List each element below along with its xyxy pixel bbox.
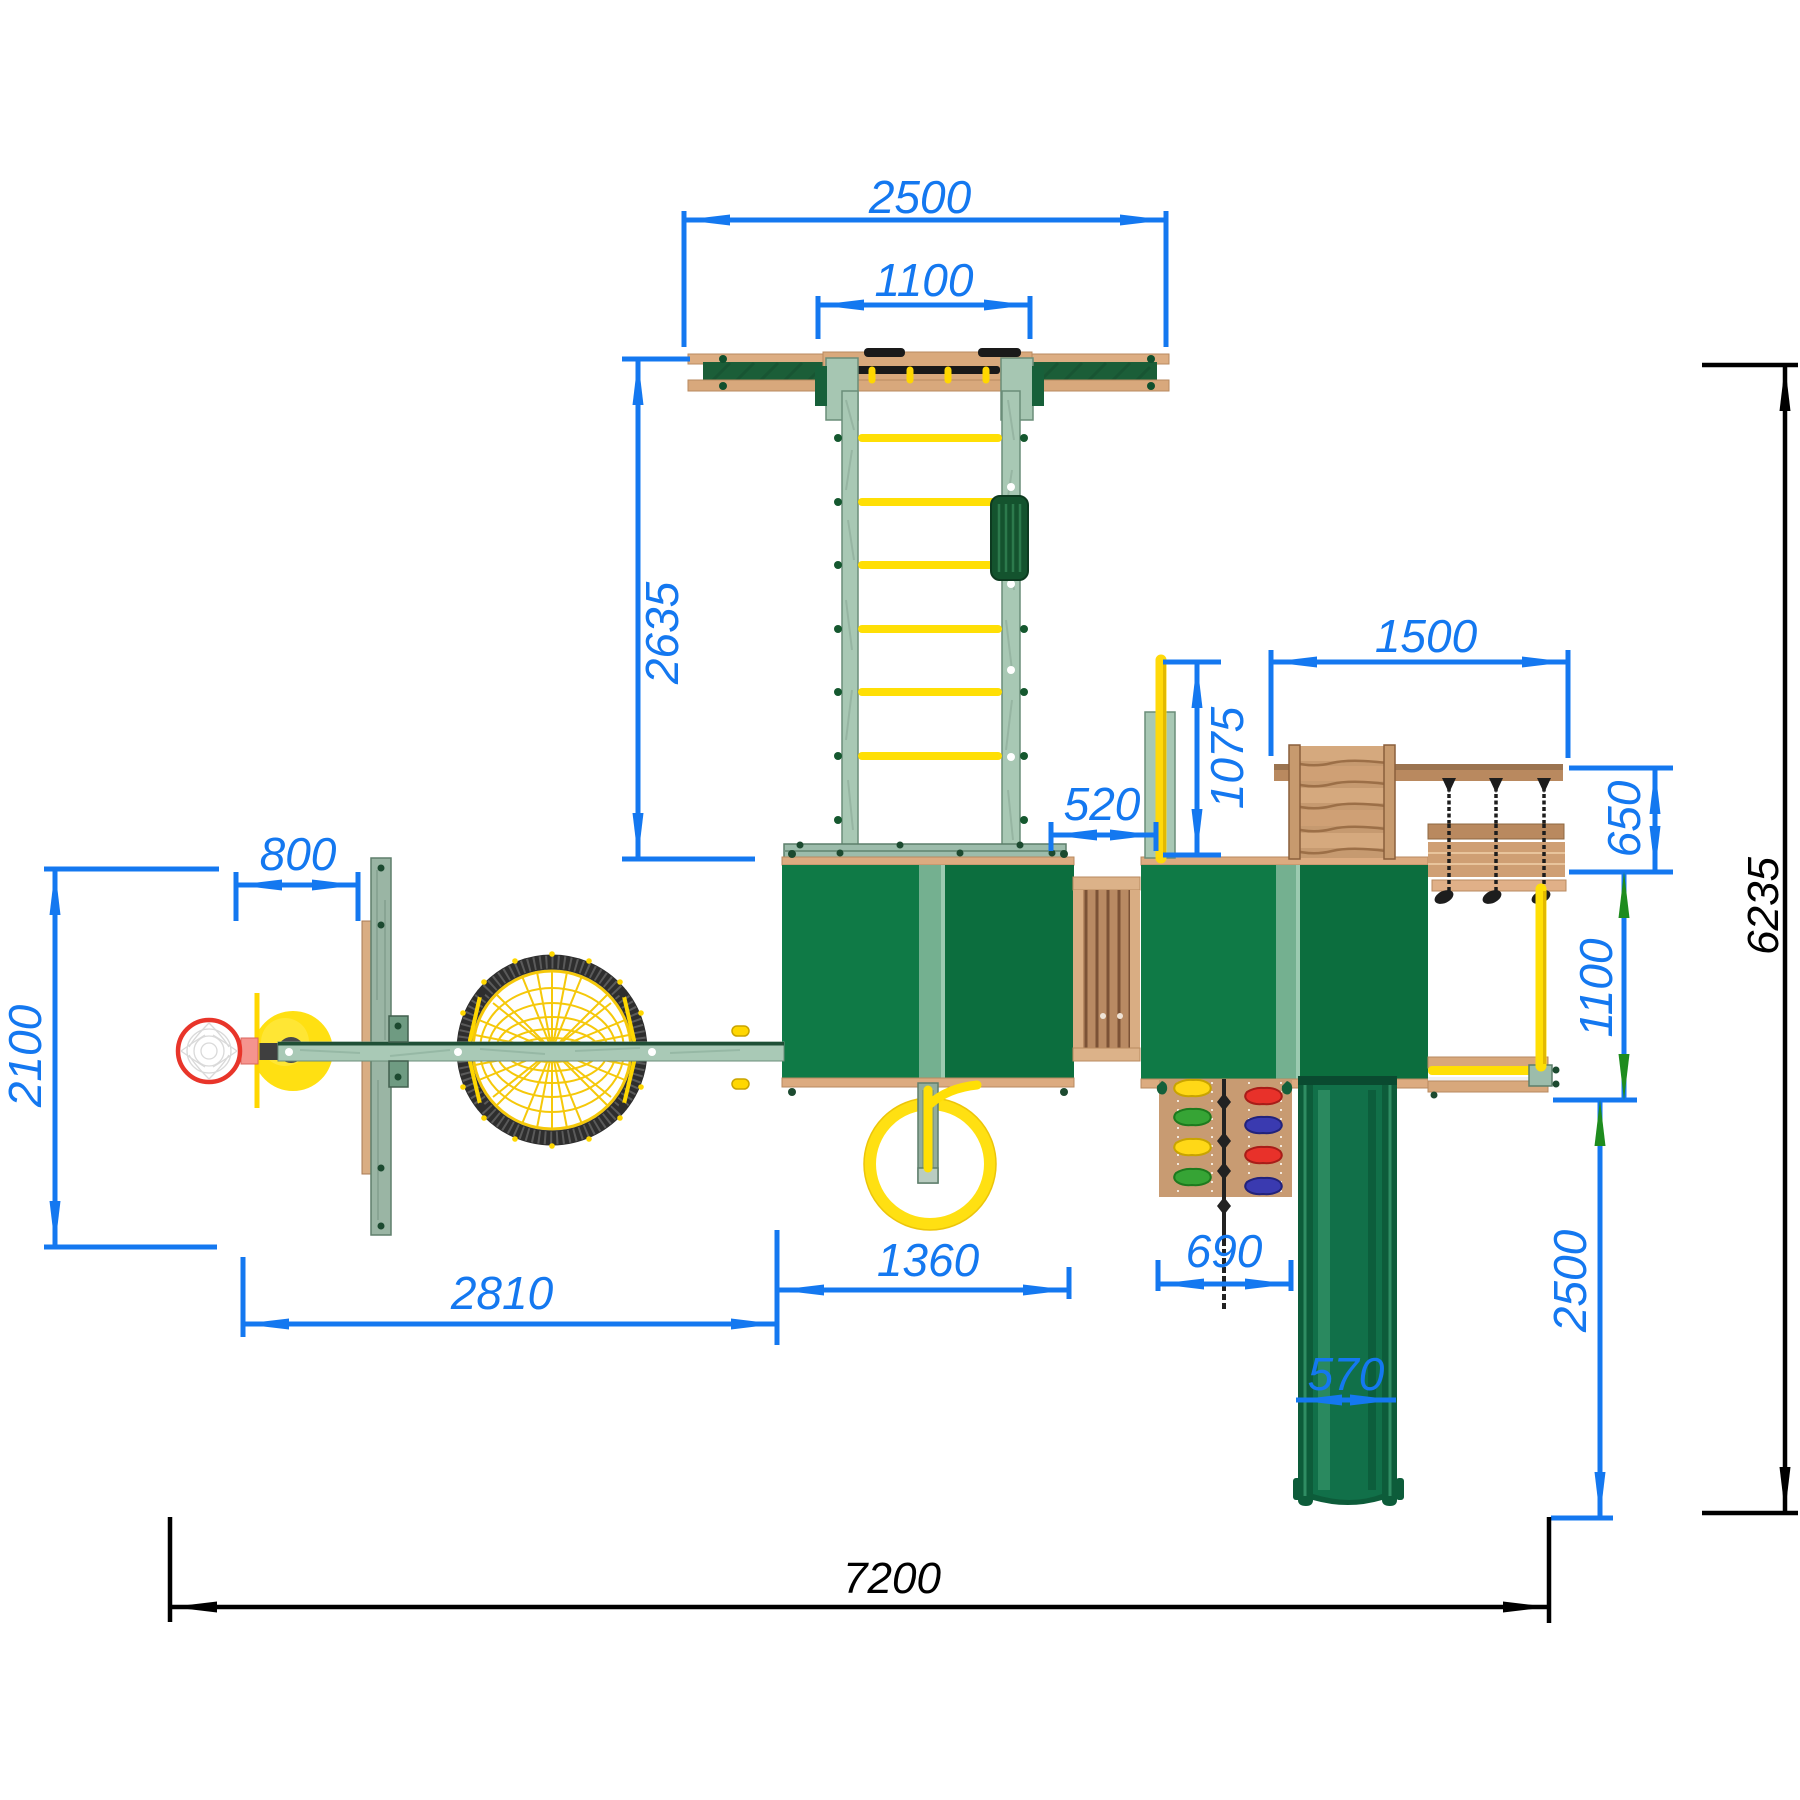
svg-text:2635: 2635 <box>636 581 688 685</box>
svg-text:2100: 2100 <box>0 1004 51 1108</box>
svg-text:1100: 1100 <box>1570 938 1622 1037</box>
svg-text:1100: 1100 <box>875 254 974 306</box>
svg-text:7200: 7200 <box>843 1554 941 1603</box>
svg-text:6235: 6235 <box>1739 857 1788 955</box>
svg-text:2810: 2810 <box>450 1267 554 1319</box>
svg-text:1360: 1360 <box>877 1234 980 1286</box>
svg-text:1500: 1500 <box>1375 610 1478 662</box>
svg-text:800: 800 <box>260 828 337 880</box>
svg-text:690: 690 <box>1186 1225 1263 1277</box>
svg-text:650: 650 <box>1598 780 1650 857</box>
svg-text:520: 520 <box>1064 778 1141 830</box>
svg-text:1075: 1075 <box>1201 706 1253 809</box>
svg-text:2500: 2500 <box>1544 1229 1596 1333</box>
svg-text:2500: 2500 <box>868 171 972 223</box>
svg-text:570: 570 <box>1308 1348 1385 1400</box>
